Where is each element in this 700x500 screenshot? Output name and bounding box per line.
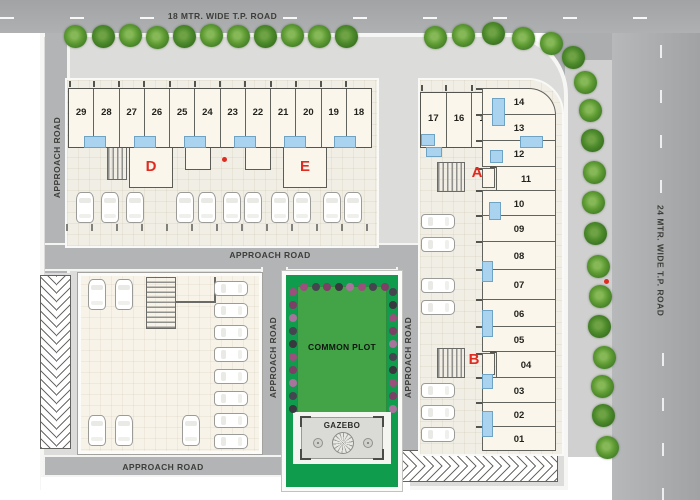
- balcony-icon: [284, 136, 306, 148]
- wing-label-d: D: [139, 157, 163, 177]
- red-dot-marker: [604, 279, 609, 284]
- flower-icon: [389, 288, 397, 296]
- parking-ticks: [66, 224, 372, 231]
- car-icon: [271, 192, 289, 223]
- car-icon: [344, 192, 362, 223]
- unit-number: 02: [483, 410, 555, 421]
- car-icon: [421, 383, 455, 398]
- car-icon: [182, 415, 200, 446]
- unit-number: 22: [246, 107, 270, 118]
- tree-icon: [589, 285, 612, 308]
- flower-icon: [389, 301, 397, 309]
- tree-icon: [64, 25, 87, 48]
- unit-row: 01: [482, 426, 556, 451]
- unit-cell: 16: [446, 93, 472, 147]
- balcony-icon: [426, 147, 442, 157]
- unit-row: 11: [496, 166, 556, 191]
- tree-icon: [92, 25, 115, 48]
- flower-icon: [289, 327, 297, 335]
- car-icon: [421, 237, 455, 252]
- gazebo-dome-icon: [332, 432, 354, 454]
- car-icon: [421, 278, 455, 293]
- unit-number: 24: [195, 107, 219, 118]
- flower-icon: [389, 314, 397, 322]
- car-icon: [115, 279, 133, 310]
- tree-icon: [200, 24, 223, 47]
- unit-number: 21: [271, 107, 295, 118]
- flower-icon: [289, 379, 297, 387]
- wing-label-e: E: [293, 157, 317, 177]
- flower-icon: [289, 301, 297, 309]
- tree-icon: [512, 27, 535, 50]
- tp-road-top-label: 18 MTR. WIDE T.P. ROAD: [145, 12, 300, 21]
- block-de-building: 292827262524232221201918: [68, 88, 372, 148]
- corner-bracket: [300, 449, 311, 460]
- tree-icon: [593, 346, 616, 369]
- unit-number: 08: [483, 251, 555, 262]
- balcony-icon: [482, 411, 493, 437]
- car-icon: [293, 192, 311, 223]
- tree-icon: [452, 24, 475, 47]
- unit-row: 08: [482, 241, 556, 270]
- lane-dashes: [283, 17, 700, 19]
- tree-icon: [281, 24, 304, 47]
- balcony-icon: [134, 136, 156, 148]
- car-icon: [214, 434, 248, 449]
- car-icon: [421, 405, 455, 420]
- tree-icon: [173, 25, 196, 48]
- balcony-icon: [84, 136, 106, 148]
- tree-icon: [146, 26, 169, 49]
- lane-dashes: [662, 353, 664, 500]
- tree-icon: [562, 46, 585, 69]
- car-icon: [214, 281, 248, 296]
- unit-number: 29: [69, 107, 93, 118]
- unit-number: 25: [170, 107, 194, 118]
- gazebo-structure: GAZEBO: [301, 417, 383, 459]
- flower-icon: [335, 283, 343, 291]
- unit-number: 06: [483, 309, 555, 320]
- tree-icon: [587, 255, 610, 278]
- flower-icon: [389, 340, 397, 348]
- unit-number: 16: [447, 113, 472, 124]
- wing-label-b: B: [462, 350, 486, 370]
- chevron-hatch-icon: [40, 275, 71, 449]
- balcony-icon: [234, 136, 256, 148]
- car-icon: [214, 369, 248, 384]
- flower-icon: [358, 283, 366, 291]
- unit-number: 18: [347, 107, 371, 118]
- block-ab-unit-column: 1413121110090807060504030201: [482, 88, 556, 450]
- utility-room: [185, 148, 211, 170]
- lane-dashes: [660, 45, 662, 195]
- flower-icon: [389, 392, 397, 400]
- flower-icon: [323, 283, 331, 291]
- flower-icon: [289, 405, 297, 413]
- corner-bracket: [300, 416, 311, 427]
- unit-number: 07: [483, 280, 555, 291]
- unit-number: 04: [497, 360, 555, 371]
- flower-icon: [389, 405, 397, 413]
- flower-icon: [312, 283, 320, 291]
- balcony-icon: [482, 310, 493, 337]
- tree-icon: [574, 71, 597, 94]
- unit-number: 09: [483, 224, 555, 235]
- utility-room: [245, 148, 271, 170]
- gazebo-column-icon: [363, 438, 373, 448]
- car-icon: [126, 192, 144, 223]
- flower-icon: [381, 283, 389, 291]
- gazebo-column-icon: [313, 438, 323, 448]
- car-icon: [214, 347, 248, 362]
- tree-icon: [579, 99, 602, 122]
- margin-patch: [41, 477, 283, 490]
- car-icon: [421, 300, 455, 315]
- balcony-icon: [334, 136, 356, 148]
- car-icon: [176, 192, 194, 223]
- site-plan: 18 MTR. WIDE T.P. ROAD 24 MTR. WIDE T.P.…: [0, 0, 700, 500]
- tree-icon: [482, 22, 505, 45]
- flower-icon: [369, 283, 377, 291]
- car-icon: [323, 192, 341, 223]
- tree-icon: [583, 161, 606, 184]
- tree-icon: [596, 436, 619, 459]
- car-icon: [214, 413, 248, 428]
- unit-number: 27: [120, 107, 144, 118]
- flower-icon: [346, 283, 354, 291]
- unit-number: 05: [483, 335, 555, 346]
- flower-icon: [300, 283, 308, 291]
- car-icon: [76, 192, 94, 223]
- flower-icon: [389, 353, 397, 361]
- car-icon: [223, 192, 241, 223]
- lane-dashes: [0, 17, 158, 19]
- balcony-icon: [421, 134, 435, 146]
- flower-icon: [289, 353, 297, 361]
- plot-area: APPROACH ROAD APPROACH ROAD APPROACH ROA…: [40, 33, 568, 490]
- flower-icon: [289, 314, 297, 322]
- balcony-icon: [184, 136, 206, 148]
- car-icon: [88, 279, 106, 310]
- flower-icon: [289, 288, 297, 296]
- flower-icon: [289, 366, 297, 374]
- staircase-icon: [437, 348, 465, 378]
- balcony-icon: [492, 98, 505, 126]
- car-icon: [198, 192, 216, 223]
- flower-icon: [389, 366, 397, 374]
- car-icon: [214, 325, 248, 340]
- car-icon: [214, 303, 248, 318]
- car-icon: [88, 415, 106, 446]
- tree-icon: [592, 404, 615, 427]
- tree-icon: [308, 25, 331, 48]
- staircase-icon: [107, 148, 127, 180]
- balcony-icon: [490, 150, 503, 163]
- unit-row: 06: [482, 299, 556, 327]
- unit-row: 05: [482, 326, 556, 352]
- approach-road-bottom-label: APPROACH ROAD: [83, 463, 243, 472]
- red-dot-marker: [222, 157, 227, 162]
- tree-icon: [335, 25, 358, 48]
- tree-icon: [588, 315, 611, 338]
- unit-number: 01: [483, 434, 555, 445]
- unit-number: 11: [497, 174, 555, 185]
- wing-label-a: A: [465, 163, 489, 183]
- common-plot-lawn: COMMON PLOT: [297, 286, 387, 413]
- stair-landing-wall: [176, 301, 216, 303]
- common-plot-label: COMMON PLOT: [298, 342, 386, 353]
- tp-road-right-label: 24 MTR. WIDE T.P. ROAD: [656, 205, 665, 345]
- staircase-icon: [437, 162, 465, 192]
- tree-icon: [540, 32, 563, 55]
- car-icon: [101, 192, 119, 223]
- car-icon: [421, 427, 455, 442]
- tree-icon: [581, 129, 604, 152]
- car-icon: [115, 415, 133, 446]
- balcony-icon: [520, 136, 543, 148]
- tree-icon: [424, 26, 447, 49]
- flower-icon: [389, 379, 397, 387]
- tree-icon: [254, 25, 277, 48]
- car-icon: [421, 214, 455, 229]
- unit-number: 20: [296, 107, 320, 118]
- car-icon: [244, 192, 262, 223]
- car-icon: [214, 391, 248, 406]
- unit-row: 03: [482, 377, 556, 403]
- tree-icon: [582, 191, 605, 214]
- unit-row: 04: [496, 351, 556, 378]
- unit-number: 17: [421, 113, 446, 124]
- balcony-icon: [482, 261, 493, 282]
- flower-icon: [289, 392, 297, 400]
- balcony-icon: [489, 202, 501, 220]
- unit-number: 26: [145, 107, 169, 118]
- unit-number: 19: [322, 107, 346, 118]
- unit-number: 28: [94, 107, 118, 118]
- flower-icon: [289, 340, 297, 348]
- corner-bracket: [373, 416, 384, 427]
- approach-road-central-label: APPROACH ROAD: [160, 251, 380, 260]
- tree-icon: [584, 222, 607, 245]
- gazebo-label: GAZEBO: [302, 421, 382, 430]
- flower-icon: [389, 327, 397, 335]
- tree-icon: [591, 375, 614, 398]
- tp-road-right: 24 MTR. WIDE T.P. ROAD: [612, 33, 700, 500]
- balcony-icon: [482, 374, 493, 389]
- staircase-icon: [146, 277, 176, 329]
- unit-row: 02: [482, 402, 556, 427]
- unit-number: 23: [221, 107, 245, 118]
- tree-icon: [227, 25, 250, 48]
- unit-number: 03: [483, 386, 555, 397]
- tree-icon: [119, 24, 142, 47]
- unit-row: 07: [482, 269, 556, 300]
- corner-bracket: [373, 449, 384, 460]
